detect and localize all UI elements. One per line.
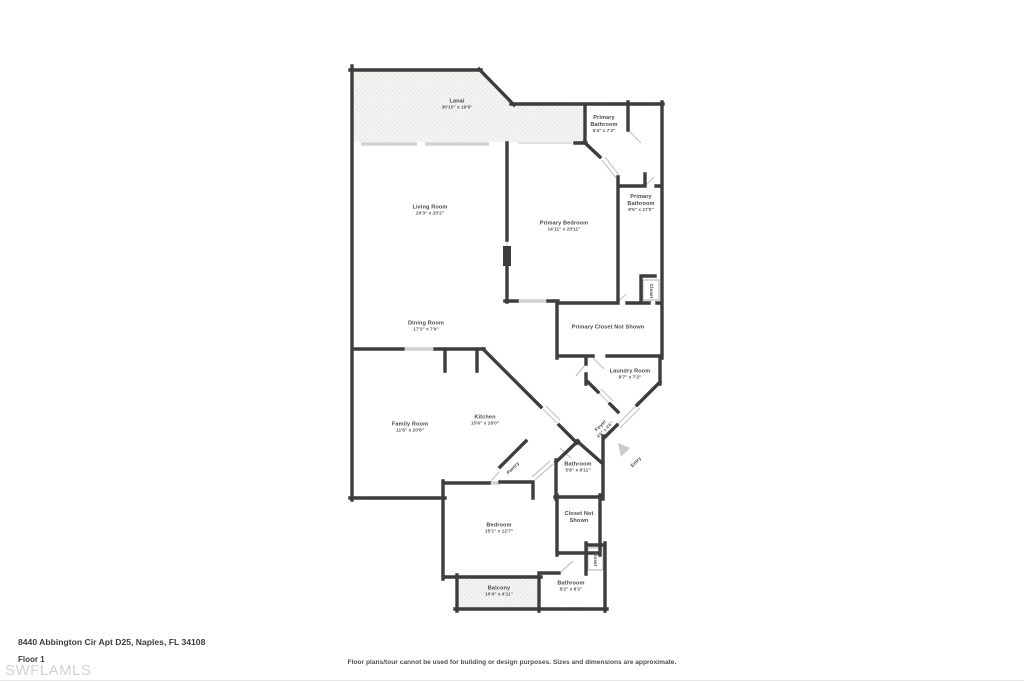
- floor-plan-page: Lanai 30'10" x 19'6" Primary Bathroom 5'…: [0, 0, 1024, 682]
- entry-arrow-icon: [618, 443, 630, 457]
- property-address: 8440 Abbington Cir Apt D25, Naples, FL 3…: [18, 637, 205, 647]
- closet-door-icon: [643, 280, 659, 300]
- lanai-hatch-area: [353, 71, 584, 142]
- walls: [350, 66, 663, 611]
- window-sill: [503, 246, 511, 266]
- bottom-divider: [0, 680, 1024, 681]
- window-lines-thin: [507, 143, 572, 266]
- door-swing-lines: [490, 131, 658, 572]
- floor-plan-drawing: [0, 0, 1024, 682]
- window-lines: [361, 70, 662, 609]
- balcony-hatch-area: [459, 578, 537, 608]
- disclaimer-text: Floor plans/tour cannot be used for buil…: [0, 659, 1024, 666]
